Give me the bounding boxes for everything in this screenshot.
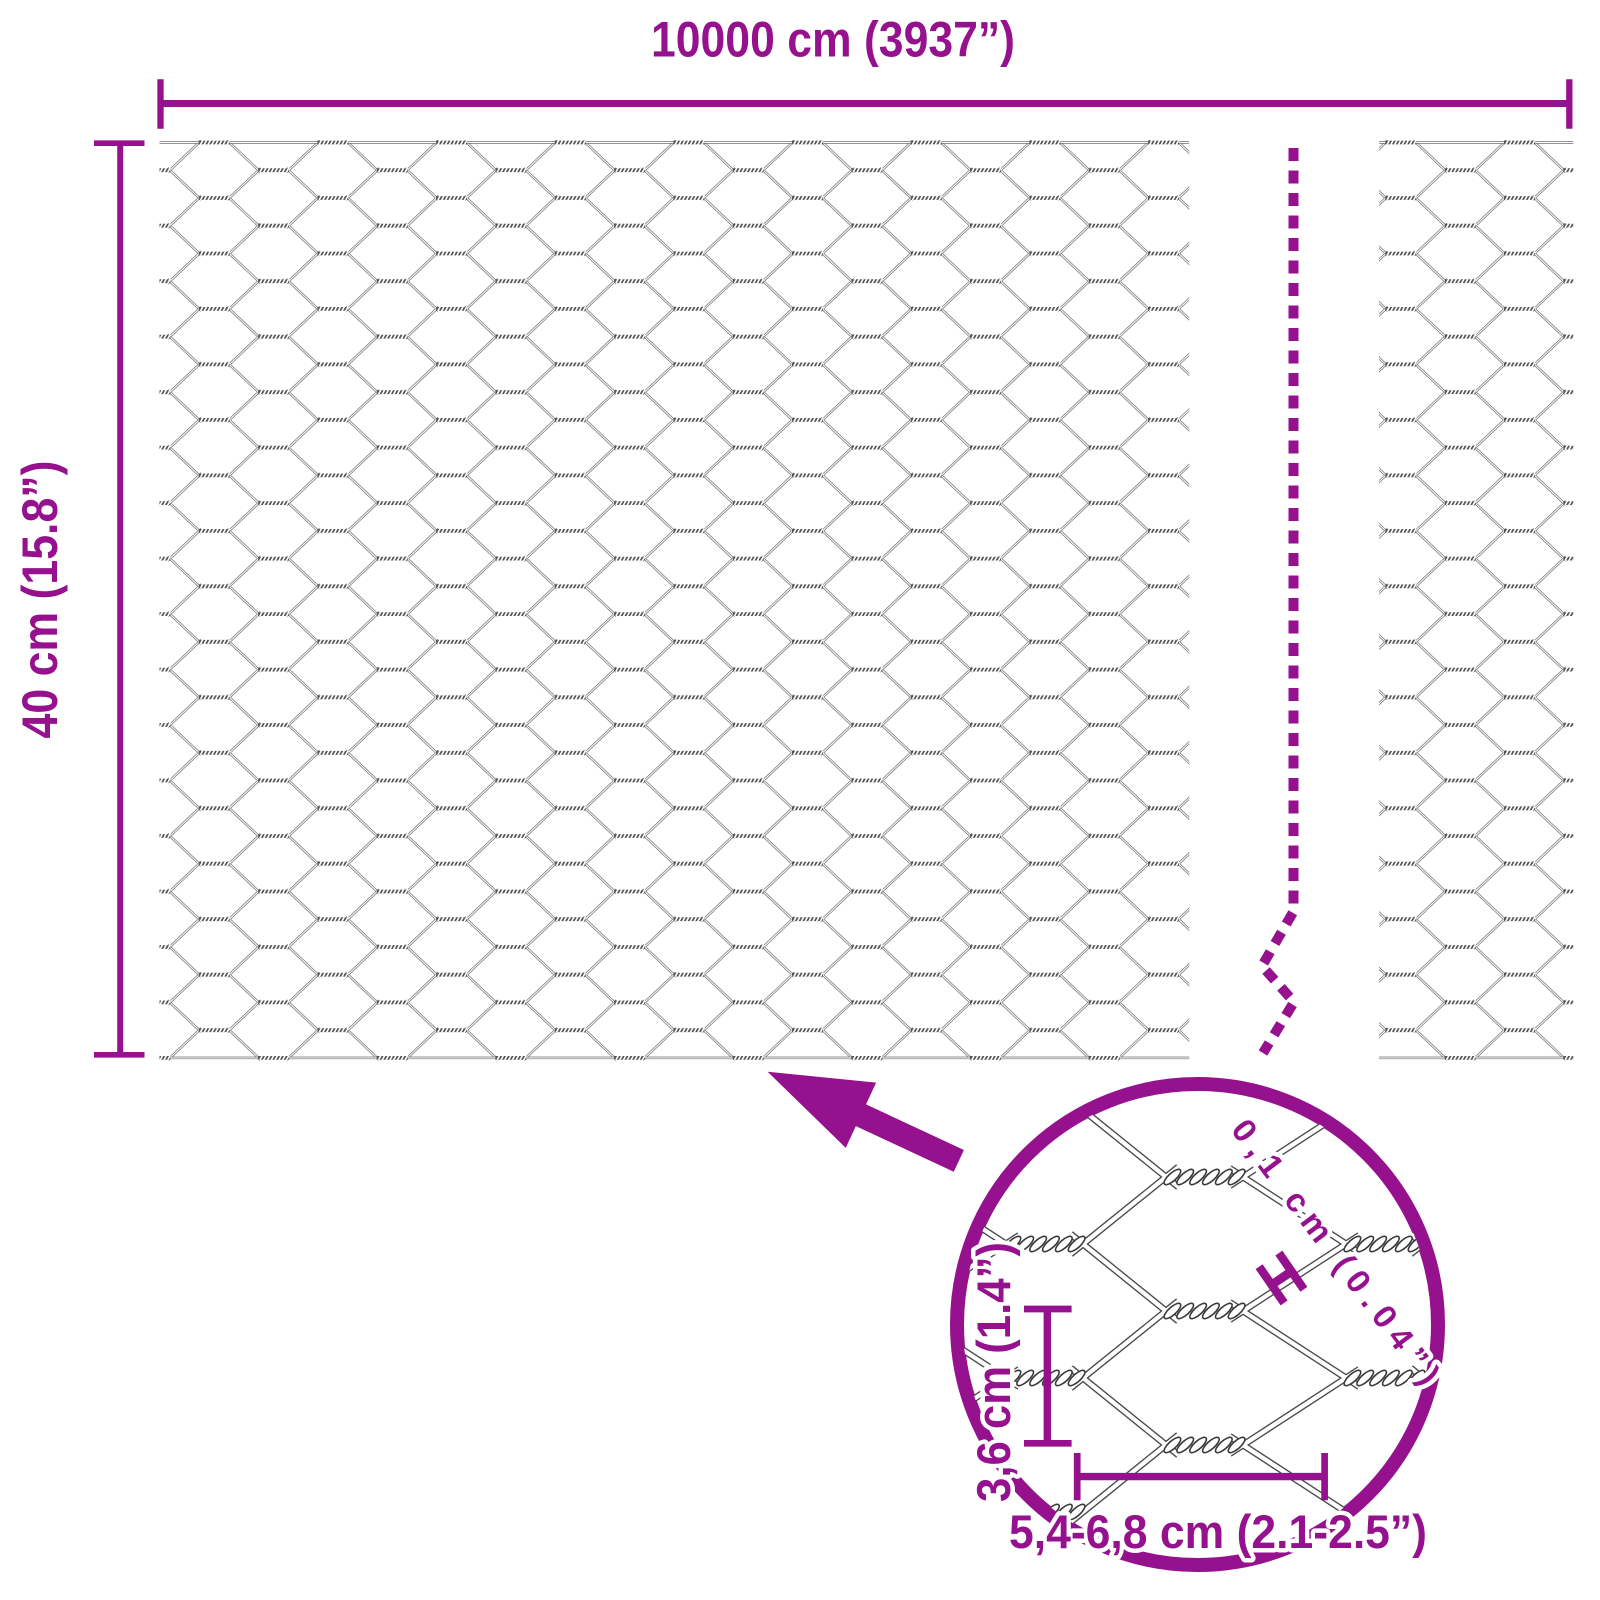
svg-text:10000 cm (3937”): 10000 cm (3937”) [651,11,1015,68]
svg-text:5,4-6,8 cm (2.1-2.5”): 5,4-6,8 cm (2.1-2.5”) [1009,1505,1427,1558]
svg-text:3,6 cm (1.4”): 3,6 cm (1.4”) [967,1242,1020,1502]
svg-text:40 cm (15.8”): 40 cm (15.8”) [11,461,68,739]
